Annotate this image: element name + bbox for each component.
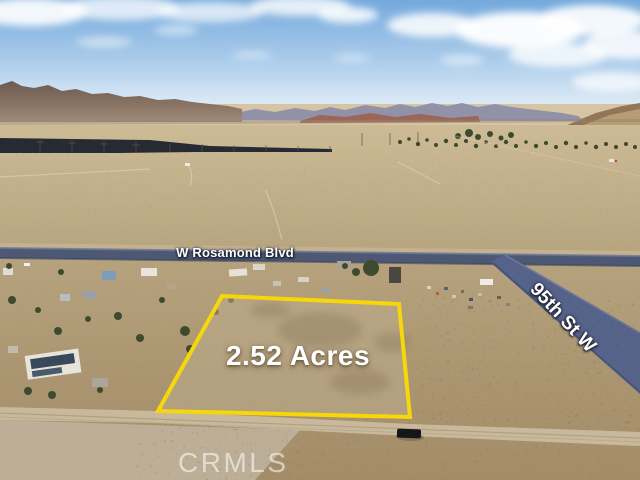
road-label-rosamond: W Rosamond Blvd bbox=[170, 245, 300, 260]
watermark-crmls: CRMLS bbox=[178, 447, 289, 479]
scrub-texture-mid bbox=[0, 152, 640, 250]
aerial-listing-photo: W Rosamond Blvd 95th St W 2.52 Acres CRM… bbox=[0, 0, 640, 480]
landscape-art bbox=[0, 0, 640, 480]
parcel-acreage-label: 2.52 Acres bbox=[213, 340, 383, 372]
